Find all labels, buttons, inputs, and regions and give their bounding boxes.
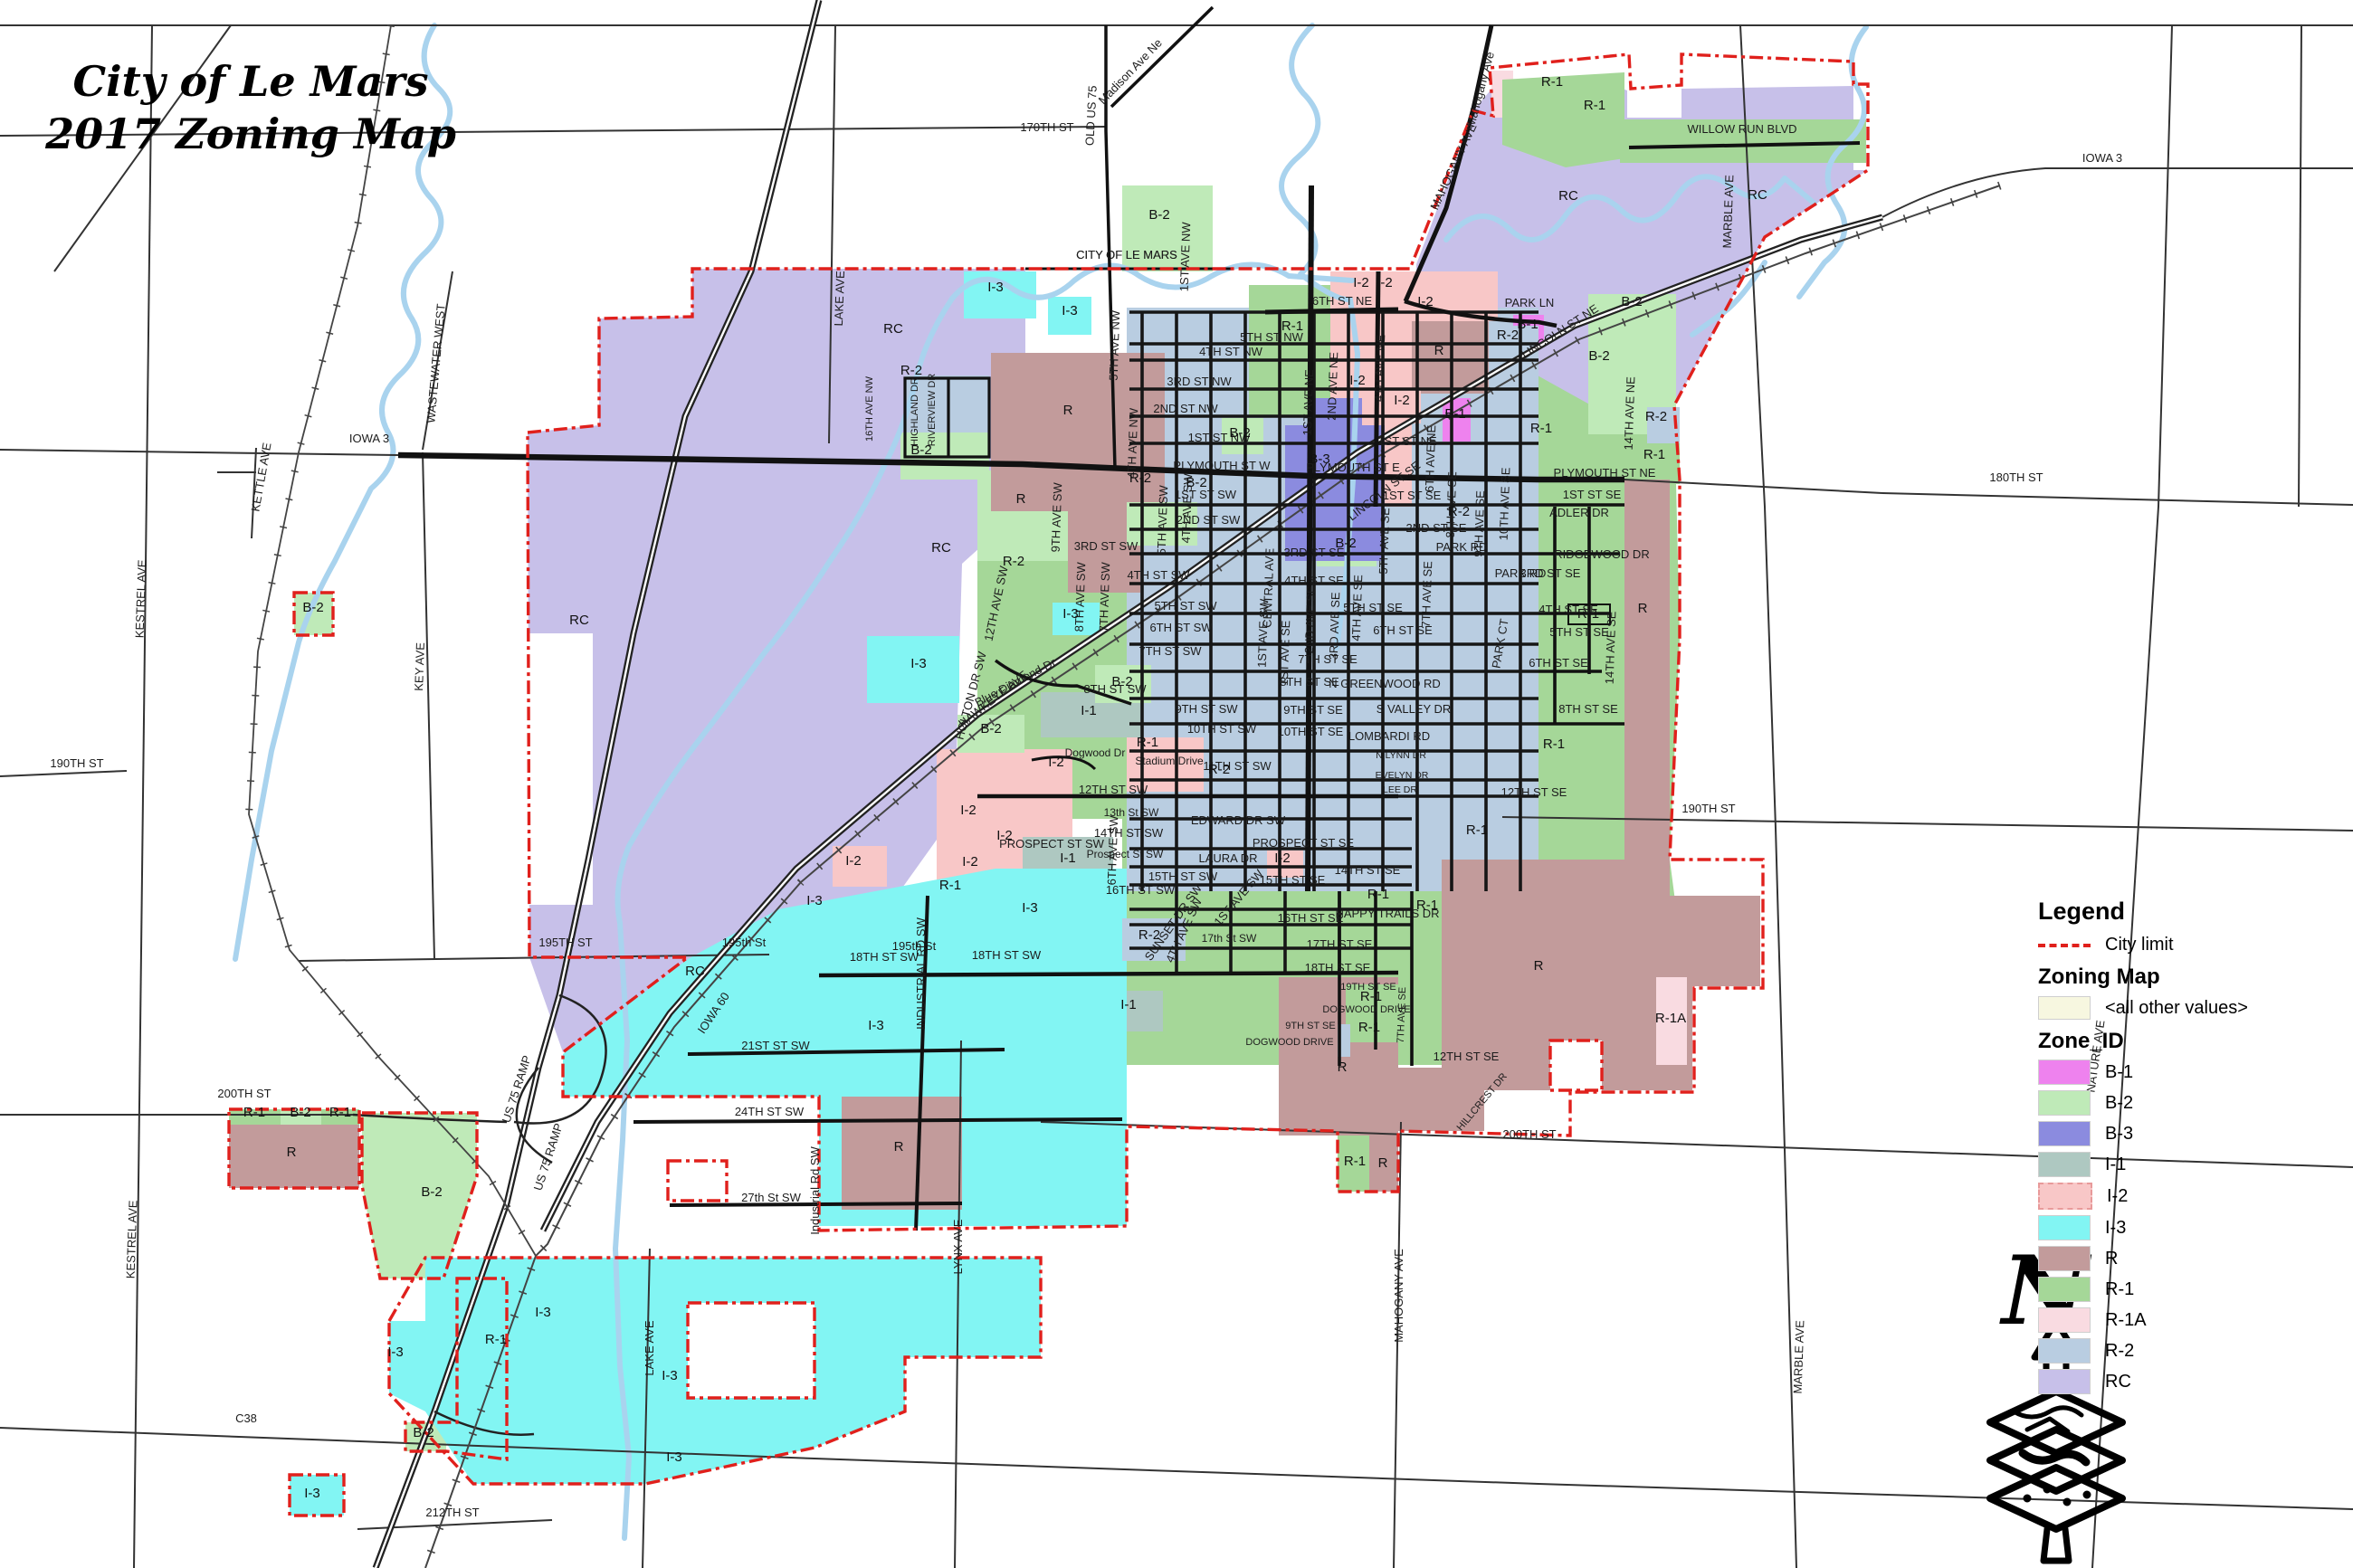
svg-text:1ST AVE NE: 1ST AVE NE bbox=[1300, 369, 1317, 436]
map-canvas: 170TH STIOWA 3IOWA 3180TH ST190TH ST190T… bbox=[0, 0, 2353, 1568]
svg-text:R-1: R-1 bbox=[1543, 736, 1565, 752]
svg-text:R: R bbox=[1016, 491, 1026, 507]
svg-text:17TH ST SE: 17TH ST SE bbox=[1307, 937, 1373, 951]
svg-text:16TH AVE NW: 16TH AVE NW bbox=[864, 375, 875, 442]
svg-text:14TH AVE SE: 14TH AVE SE bbox=[1603, 611, 1619, 684]
map-title-line2: 2017 Zoning Map bbox=[38, 109, 463, 161]
zone-id-label: R-1 bbox=[2105, 1279, 2134, 1300]
svg-text:B-2: B-2 bbox=[1186, 475, 1206, 490]
svg-text:3RD ST SW: 3RD ST SW bbox=[1074, 539, 1138, 553]
svg-text:10TH ST SW: 10TH ST SW bbox=[1187, 722, 1257, 736]
svg-text:I-1: I-1 bbox=[1081, 703, 1097, 718]
legend-zone-r: R bbox=[2038, 1246, 2337, 1271]
svg-text:PROSPECT ST SE: PROSPECT ST SE bbox=[1253, 836, 1355, 850]
zone-swatch bbox=[2038, 1246, 2091, 1271]
svg-text:7TH AVE SE: 7TH AVE SE bbox=[1396, 987, 1408, 1044]
svg-text:I-3: I-3 bbox=[1062, 303, 1078, 318]
svg-text:B-2: B-2 bbox=[1111, 674, 1132, 689]
svg-text:9TH ST SE: 9TH ST SE bbox=[1285, 1021, 1335, 1031]
zone-swatch bbox=[2038, 1338, 2091, 1364]
legend-zone-b-1: B-1 bbox=[2038, 1060, 2337, 1085]
svg-text:R: R bbox=[1338, 1060, 1348, 1075]
legend-zone-b-2: B-2 bbox=[2038, 1090, 2337, 1116]
svg-text:Dogwood Dr: Dogwood Dr bbox=[1065, 746, 1126, 759]
svg-text:18TH ST SW: 18TH ST SW bbox=[972, 948, 1042, 962]
svg-text:I-3: I-3 bbox=[662, 1368, 678, 1383]
zone-id-label: RC bbox=[2105, 1372, 2131, 1392]
zone-id-label: R-2 bbox=[2105, 1341, 2134, 1362]
legend-zone-b-3: B-3 bbox=[2038, 1121, 2337, 1146]
svg-text:RC: RC bbox=[685, 964, 705, 979]
svg-text:CITY OF LE MARS: CITY OF LE MARS bbox=[1076, 248, 1177, 261]
svg-text:IOWA 3: IOWA 3 bbox=[349, 432, 389, 445]
svg-text:3RD AVE SE: 3RD AVE SE bbox=[1327, 592, 1343, 660]
zone-swatch bbox=[2038, 1121, 2091, 1146]
svg-text:KESTREL AVE: KESTREL AVE bbox=[132, 559, 148, 639]
svg-text:Prospect St SW: Prospect St SW bbox=[1087, 848, 1164, 860]
map-title-line1: City of Le Mars bbox=[38, 56, 463, 109]
svg-text:B-1: B-1 bbox=[1517, 317, 1538, 332]
svg-text:R: R bbox=[287, 1145, 297, 1160]
svg-text:OLD US 75: OLD US 75 bbox=[1082, 85, 1099, 146]
svg-text:CENTRAL AVE: CENTRAL AVE bbox=[1260, 547, 1276, 628]
svg-text:B-2: B-2 bbox=[1621, 294, 1642, 309]
svg-text:I-3: I-3 bbox=[987, 280, 1004, 295]
svg-text:R-1: R-1 bbox=[1358, 1020, 1380, 1035]
svg-text:10TH ST SE: 10TH ST SE bbox=[1278, 725, 1344, 738]
svg-text:IOWA 3: IOWA 3 bbox=[2082, 151, 2122, 165]
svg-text:EDWARD DR SW: EDWARD DR SW bbox=[1191, 813, 1286, 827]
svg-text:15TH ST SE: 15TH ST SE bbox=[1260, 873, 1326, 887]
svg-text:MARBLE AVE: MARBLE AVE bbox=[1720, 175, 1737, 249]
svg-text:I-2: I-2 bbox=[996, 828, 1013, 843]
svg-text:N GREENWOOD RD: N GREENWOOD RD bbox=[1329, 677, 1441, 690]
svg-text:1ST AVE SE: 1ST AVE SE bbox=[1277, 620, 1293, 686]
svg-text:I-1: I-1 bbox=[1120, 997, 1137, 1012]
svg-text:7TH AVE SE: 7TH AVE SE bbox=[1419, 561, 1435, 628]
svg-text:I-2: I-2 bbox=[845, 853, 862, 869]
svg-text:9TH ST SE: 9TH ST SE bbox=[1283, 703, 1343, 717]
svg-text:212TH ST: 212TH ST bbox=[425, 1506, 479, 1519]
svg-text:12TH ST SW: 12TH ST SW bbox=[1079, 783, 1148, 796]
zone-swatch bbox=[2038, 1152, 2091, 1177]
svg-text:170TH ST: 170TH ST bbox=[1020, 120, 1073, 134]
svg-text:I-3: I-3 bbox=[1062, 606, 1079, 622]
svg-text:2ND ST SE: 2ND ST SE bbox=[1406, 521, 1467, 535]
svg-text:I-2: I-2 bbox=[1349, 373, 1366, 388]
svg-text:4TH AVE SE: 4TH AVE SE bbox=[1349, 575, 1366, 641]
svg-text:5TH AVE NW: 5TH AVE NW bbox=[1107, 309, 1123, 381]
svg-text:2ND AVE SE: 2ND AVE SE bbox=[1302, 585, 1319, 654]
legend-zone-r-1a: R-1A bbox=[2038, 1307, 2337, 1333]
legend-city-limit: City limit bbox=[2038, 935, 2337, 955]
svg-text:I-1: I-1 bbox=[1060, 851, 1076, 866]
legend-zone-i-3: I-3 bbox=[2038, 1215, 2337, 1240]
svg-text:4TH AVE NW: 4TH AVE NW bbox=[1125, 407, 1141, 479]
legend-zone-rows: B-1B-2B-3I-1I-2I-3RR-1R-1AR-2RC bbox=[2038, 1060, 2337, 1394]
svg-text:R-1: R-1 bbox=[329, 1105, 351, 1120]
svg-text:N LYNN DR: N LYNN DR bbox=[1376, 750, 1426, 761]
svg-text:R-1A: R-1A bbox=[1655, 1011, 1686, 1026]
svg-text:PARK LN: PARK LN bbox=[1505, 296, 1555, 309]
svg-text:7TH AVE SW: 7TH AVE SW bbox=[1097, 561, 1113, 632]
svg-text:B-3: B-3 bbox=[1309, 451, 1329, 467]
svg-text:6TH AVE SW: 6TH AVE SW bbox=[1105, 814, 1121, 885]
legend-panel: Legend City limit Zoning Map <all other … bbox=[2038, 898, 2337, 1400]
svg-text:EVELYN DR: EVELYN DR bbox=[1376, 770, 1429, 781]
svg-text:I-3: I-3 bbox=[304, 1486, 320, 1501]
svg-text:200TH ST: 200TH ST bbox=[1502, 1127, 1556, 1141]
zone-swatch bbox=[2038, 1060, 2091, 1085]
svg-text:B-2: B-2 bbox=[421, 1184, 442, 1200]
legend-zone-rc: RC bbox=[2038, 1369, 2337, 1394]
svg-text:1ST AVE NW: 1ST AVE NW bbox=[1177, 221, 1194, 291]
svg-text:9TH AVE SE: 9TH AVE SE bbox=[1472, 490, 1488, 557]
svg-text:Stadium Drive: Stadium Drive bbox=[1135, 755, 1204, 767]
svg-text:27th St SW: 27th St SW bbox=[741, 1191, 801, 1204]
legend-zone-r-1: R-1 bbox=[2038, 1277, 2337, 1302]
svg-text:R-1: R-1 bbox=[1137, 735, 1158, 750]
svg-text:I-2: I-2 bbox=[1394, 393, 1410, 408]
zone-swatch bbox=[2038, 1183, 2092, 1210]
svg-text:R-1: R-1 bbox=[1344, 1154, 1366, 1169]
svg-text:15TH ST SW: 15TH ST SW bbox=[1148, 870, 1218, 883]
svg-text:R-2: R-2 bbox=[1003, 554, 1024, 569]
svg-text:B-2: B-2 bbox=[413, 1425, 433, 1440]
svg-text:I-2: I-2 bbox=[1048, 755, 1064, 770]
legend-zone-r-2: R-2 bbox=[2038, 1338, 2337, 1364]
zone-swatch bbox=[2038, 1090, 2091, 1116]
svg-text:R: R bbox=[1638, 601, 1648, 616]
svg-text:5TH ST SW: 5TH ST SW bbox=[1154, 599, 1217, 613]
svg-text:B-2: B-2 bbox=[1229, 425, 1250, 441]
svg-text:I-2: I-2 bbox=[962, 854, 978, 870]
legend-zone-group-title: Zone_ID bbox=[2038, 1029, 2337, 1054]
svg-text:I-3: I-3 bbox=[868, 1018, 884, 1033]
legend-zone-i-2: I-2 bbox=[2038, 1183, 2337, 1210]
svg-text:R-1: R-1 bbox=[1643, 447, 1665, 462]
svg-text:R-1: R-1 bbox=[1360, 989, 1382, 1004]
svg-text:24TH ST SW: 24TH ST SW bbox=[735, 1105, 805, 1118]
svg-text:RIVERVIEW DR: RIVERVIEW DR bbox=[927, 374, 938, 447]
svg-text:190TH ST: 190TH ST bbox=[1681, 802, 1735, 815]
svg-text:B-2: B-2 bbox=[980, 721, 1001, 736]
legend-other-values: <all other values> bbox=[2038, 996, 2337, 1020]
svg-text:US 75 RAMP: US 75 RAMP bbox=[531, 1122, 566, 1193]
svg-text:I-3: I-3 bbox=[387, 1345, 404, 1360]
svg-text:8TH ST SE: 8TH ST SE bbox=[1558, 702, 1618, 716]
svg-text:200TH ST: 200TH ST bbox=[217, 1087, 271, 1100]
svg-text:4TH ST NW: 4TH ST NW bbox=[1199, 345, 1263, 358]
city-limit-label: City limit bbox=[2105, 935, 2174, 955]
city-limit-swatch bbox=[2038, 944, 2091, 947]
zone-id-label: B-2 bbox=[2105, 1093, 2133, 1114]
svg-text:RC: RC bbox=[1748, 187, 1767, 203]
svg-text:ADLER DR: ADLER DR bbox=[1549, 506, 1609, 519]
svg-text:R: R bbox=[1063, 403, 1073, 418]
svg-text:R-2: R-2 bbox=[900, 363, 922, 378]
zone-id-label: B-1 bbox=[2105, 1062, 2133, 1083]
svg-text:9TH ST SW: 9TH ST SW bbox=[1175, 702, 1238, 716]
zone-swatch bbox=[2038, 1277, 2091, 1302]
svg-text:180TH ST: 180TH ST bbox=[1989, 470, 2043, 484]
svg-text:KEY AVE: KEY AVE bbox=[412, 641, 427, 691]
svg-text:WASTEWATER WEST: WASTEWATER WEST bbox=[424, 303, 447, 423]
svg-text:R: R bbox=[1378, 1155, 1388, 1171]
svg-text:1ST ST SE: 1ST ST SE bbox=[1563, 488, 1622, 501]
svg-text:2ND ST NW: 2ND ST NW bbox=[1153, 402, 1218, 415]
zone-id-label: B-3 bbox=[2105, 1124, 2133, 1145]
svg-text:HIGHLAND DR: HIGHLAND DR bbox=[910, 377, 920, 446]
other-values-label: <all other values> bbox=[2105, 998, 2248, 1019]
svg-text:RC: RC bbox=[883, 321, 903, 337]
svg-text:R-2: R-2 bbox=[1138, 927, 1160, 943]
svg-text:B-2: B-2 bbox=[290, 1105, 310, 1120]
svg-text:14TH ST SE: 14TH ST SE bbox=[1335, 863, 1401, 877]
svg-text:DOGWOOD DRIVE: DOGWOOD DRIVE bbox=[1245, 1037, 1333, 1048]
svg-text:R-1: R-1 bbox=[1577, 606, 1599, 622]
svg-text:4TH ST SE: 4TH ST SE bbox=[1284, 574, 1344, 587]
svg-text:5TH ST SE: 5TH ST SE bbox=[1549, 625, 1609, 639]
svg-text:Industrial Rd SW: Industrial Rd SW bbox=[808, 1146, 822, 1235]
legend-zone-i-1: I-1 bbox=[2038, 1152, 2337, 1177]
svg-text:6TH AVE NE: 6TH AVE NE bbox=[1423, 424, 1439, 492]
zone-swatch bbox=[2038, 1369, 2091, 1394]
svg-text:RC: RC bbox=[931, 540, 951, 556]
svg-text:10TH AVE SE: 10TH AVE SE bbox=[1497, 467, 1513, 540]
svg-text:KESTREL AVE: KESTREL AVE bbox=[123, 1200, 139, 1279]
svg-text:R-2: R-2 bbox=[1448, 504, 1470, 519]
svg-text:R-1: R-1 bbox=[1416, 898, 1438, 913]
svg-text:RC: RC bbox=[569, 613, 589, 628]
svg-text:PARK RD: PARK RD bbox=[1495, 566, 1547, 580]
svg-text:R: R bbox=[894, 1139, 904, 1155]
svg-text:6TH ST NE: 6TH ST NE bbox=[1312, 294, 1373, 308]
zone-id-label: I-3 bbox=[2105, 1218, 2126, 1239]
map-title: City of Le Mars 2017 Zoning Map bbox=[38, 56, 463, 160]
svg-text:KETTLE AVE: KETTLE AVE bbox=[248, 442, 273, 513]
svg-text:S VALLEY DR: S VALLEY DR bbox=[1377, 702, 1452, 716]
svg-text:B-2: B-2 bbox=[1588, 348, 1609, 364]
svg-text:3RD ST NW: 3RD ST NW bbox=[1167, 375, 1232, 388]
svg-text:R-2: R-2 bbox=[1208, 762, 1230, 777]
svg-text:LAKE AVE: LAKE AVE bbox=[643, 1320, 656, 1376]
svg-text:B-2: B-2 bbox=[302, 600, 323, 615]
svg-text:B-2: B-2 bbox=[910, 442, 931, 458]
svg-text:R-1: R-1 bbox=[1584, 98, 1605, 113]
svg-text:R-1: R-1 bbox=[1466, 822, 1488, 838]
svg-text:MAHOGANY AVE: MAHOGANY AVE bbox=[1392, 1249, 1405, 1343]
svg-text:5TH AVE SW: 5TH AVE SW bbox=[1155, 484, 1171, 555]
svg-text:R-2: R-2 bbox=[1129, 470, 1151, 486]
legend-group-title: Zoning Map bbox=[2038, 965, 2337, 990]
svg-text:I-2: I-2 bbox=[1353, 275, 1369, 290]
svg-text:6TH ST SE: 6TH ST SE bbox=[1529, 656, 1588, 670]
svg-text:9TH AVE SW: 9TH AVE SW bbox=[1049, 481, 1065, 552]
svg-text:4TH ST SW: 4TH ST SW bbox=[1127, 568, 1190, 582]
svg-text:2ND AVE NE: 2ND AVE NE bbox=[1325, 351, 1341, 420]
svg-text:R-1: R-1 bbox=[485, 1332, 507, 1347]
svg-text:R-1: R-1 bbox=[1281, 318, 1303, 334]
svg-text:18TH ST SE: 18TH ST SE bbox=[1305, 961, 1371, 974]
svg-text:I-2: I-2 bbox=[1417, 294, 1434, 309]
other-values-swatch bbox=[2038, 996, 2091, 1020]
svg-text:R-1: R-1 bbox=[939, 878, 961, 893]
svg-text:I-3: I-3 bbox=[666, 1449, 682, 1465]
svg-text:INDUSTRIAL RD SW: INDUSTRIAL RD SW bbox=[914, 917, 928, 1029]
svg-text:I-2: I-2 bbox=[960, 803, 976, 818]
svg-text:18TH ST SW: 18TH ST SW bbox=[850, 950, 919, 964]
svg-text:PLYMOUTH ST NE: PLYMOUTH ST NE bbox=[1554, 466, 1656, 480]
svg-text:R-1: R-1 bbox=[1530, 421, 1552, 436]
svg-text:7TH ST SW: 7TH ST SW bbox=[1138, 644, 1202, 658]
svg-text:21ST ST SW: 21ST ST SW bbox=[741, 1039, 810, 1052]
svg-text:R-1: R-1 bbox=[1541, 74, 1563, 90]
zone-id-label: R bbox=[2105, 1249, 2118, 1269]
svg-text:I-2: I-2 bbox=[1377, 275, 1393, 290]
svg-text:RC: RC bbox=[1558, 188, 1578, 204]
svg-text:12TH ST SE: 12TH ST SE bbox=[1434, 1050, 1500, 1063]
zone-swatch bbox=[2038, 1215, 2091, 1240]
svg-text:LAURA DR: LAURA DR bbox=[1198, 851, 1257, 865]
svg-text:LOMBARDI RD: LOMBARDI RD bbox=[1348, 729, 1430, 743]
zone-id-label: I-1 bbox=[2105, 1155, 2126, 1175]
svg-text:I-2: I-2 bbox=[1274, 851, 1291, 866]
svg-text:I-3: I-3 bbox=[910, 656, 927, 671]
svg-text:LYNX AVE: LYNX AVE bbox=[951, 1219, 965, 1274]
svg-text:14TH AVE NE: 14TH AVE NE bbox=[1622, 376, 1638, 451]
svg-text:190TH ST: 190TH ST bbox=[50, 756, 103, 770]
svg-text:B-1: B-1 bbox=[1444, 406, 1465, 422]
svg-text:I-3: I-3 bbox=[806, 893, 823, 908]
svg-text:R: R bbox=[1534, 958, 1544, 974]
svg-text:LEE DR: LEE DR bbox=[1383, 784, 1417, 795]
legend-heading: Legend bbox=[2038, 898, 2337, 926]
svg-text:R-1: R-1 bbox=[243, 1105, 265, 1120]
svg-text:R-2: R-2 bbox=[1497, 328, 1519, 343]
svg-text:RIDGEWOOD DR: RIDGEWOOD DR bbox=[1554, 547, 1649, 561]
svg-text:6TH ST SW: 6TH ST SW bbox=[1149, 621, 1213, 634]
svg-text:195TH ST: 195TH ST bbox=[538, 936, 592, 949]
svg-text:195th St: 195th St bbox=[722, 936, 767, 949]
svg-text:B-2: B-2 bbox=[1335, 536, 1356, 551]
zone-id-label: I-2 bbox=[2107, 1186, 2128, 1207]
svg-text:WILLOW RUN BLVD: WILLOW RUN BLVD bbox=[1687, 122, 1796, 136]
svg-text:5TH AVE SE: 5TH AVE SE bbox=[1377, 508, 1393, 575]
svg-text:LAKE AVE: LAKE AVE bbox=[832, 271, 847, 327]
zoning-map-page: 170TH STIOWA 3IOWA 3180TH ST190TH ST190T… bbox=[0, 0, 2353, 1568]
svg-text:R-1: R-1 bbox=[1367, 887, 1389, 902]
svg-text:16TH ST SE: 16TH ST SE bbox=[1278, 911, 1344, 925]
svg-text:12TH ST SE: 12TH ST SE bbox=[1501, 785, 1567, 799]
svg-text:14TH ST SW: 14TH ST SW bbox=[1094, 826, 1164, 840]
zone-swatch bbox=[2038, 1307, 2091, 1333]
svg-text:PLYMOUTH ST W: PLYMOUTH ST W bbox=[1173, 459, 1271, 472]
svg-text:R: R bbox=[1434, 343, 1444, 358]
zone-id-label: R-1A bbox=[2105, 1310, 2147, 1331]
svg-text:C38: C38 bbox=[235, 1411, 257, 1425]
svg-text:I-3: I-3 bbox=[535, 1305, 551, 1320]
svg-text:R-2: R-2 bbox=[1645, 409, 1667, 424]
svg-text:4TH AVE NE: 4TH AVE NE bbox=[1372, 334, 1388, 402]
svg-text:MARBLE AVE: MARBLE AVE bbox=[1791, 1320, 1807, 1394]
svg-text:B-2: B-2 bbox=[1148, 207, 1169, 223]
svg-text:I-3: I-3 bbox=[1022, 900, 1038, 916]
svg-text:17th St SW: 17th St SW bbox=[1202, 932, 1257, 945]
